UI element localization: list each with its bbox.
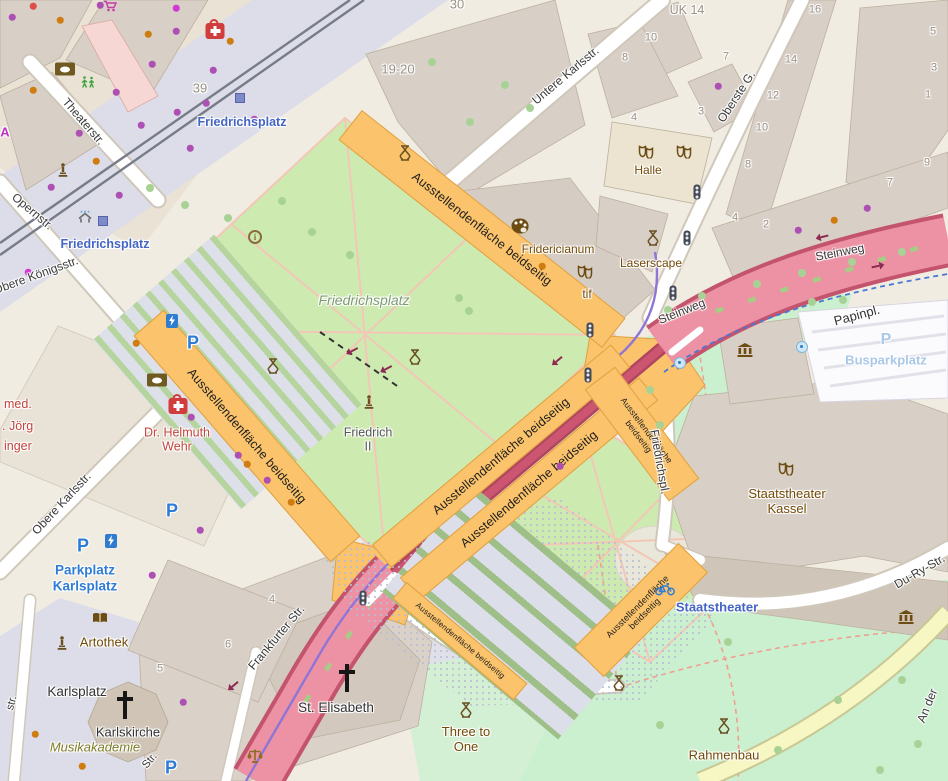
map-canvas[interactable]: Ausstellendenfläche beidseitigAusstellen… bbox=[0, 0, 948, 781]
map-tiles bbox=[0, 0, 948, 781]
